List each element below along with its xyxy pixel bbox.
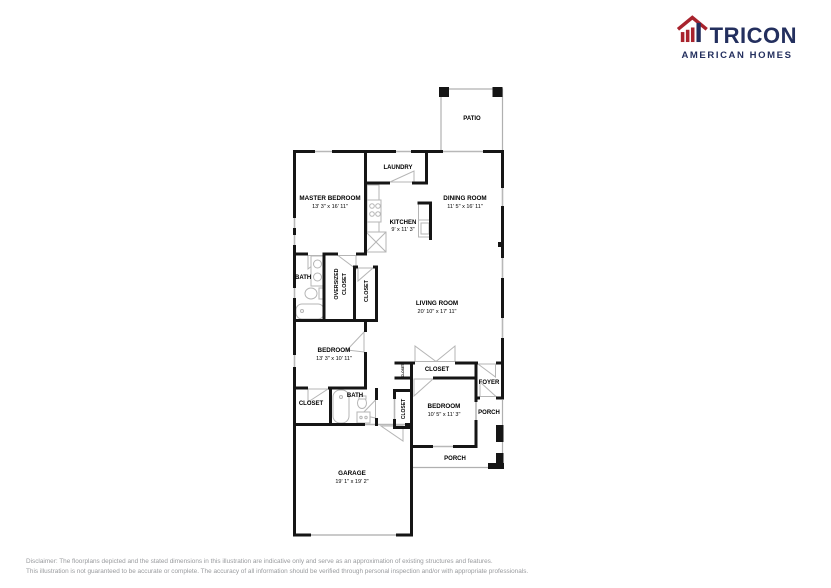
disclaimer: Disclaimer: The floorplans depicted and … [26,557,586,578]
room-label-porch-side: PORCH [478,410,500,416]
room-dims-bedroom-3: 10' 5" x 11' 3" [428,412,461,418]
room-label-bedroom-3: BEDROOM [428,403,461,410]
room-dims-dining-room: 11' 5" x 16' 11" [447,204,483,210]
room-label-dining-room: DINING ROOM [443,195,486,202]
room-dims-master-bedroom: 13' 3" x 16' 11" [312,204,348,210]
room-label-bath-2: BATH [347,393,363,399]
room-label-bedroom-2: BEDROOM [318,347,351,354]
floorplan-page: TRICON AMERICAN HOMES [0,0,831,588]
room-label-foyer: FOYER [479,380,500,386]
room-label-laundry: LAUNDRY [383,165,412,171]
room-label-bedroom-3-closet: CLOSET [425,367,450,373]
room-label-bedroom-2-closet: CLOSET [299,401,324,407]
room-label-patio: PATIO [463,116,481,122]
room-dims-bedroom-2: 13' 3" x 10' 11" [316,356,352,362]
room-label-oversized-closet-line2: CLOSET [342,272,348,295]
room-dims-living-room: 20' 10" x 17' 11" [418,309,457,315]
room-label-master-closet: CLOSET [364,279,370,302]
room-label-living-room: LIVING ROOM [416,300,458,307]
room-label-master-bedroom: MASTER BEDROOM [299,195,360,202]
disclaimer-line-1: Disclaimer: The floorplans depicted and … [26,557,586,567]
disclaimer-line-2: This illustration is not guaranteed to b… [26,567,586,577]
room-label-master-bath: BATH [295,275,311,281]
room-label-entry-closet-small: CLOSET [401,364,405,377]
room-label-oversized-closet-line1: OVERSIZED [334,268,340,299]
room-label-porch-front: PORCH [444,456,466,462]
room-dims-garage: 19' 1" x 19' 2" [335,479,368,485]
floorplan-drawing: PATIO LAUNDRY MASTER BEDROOM 13' 3" x 16… [0,0,831,588]
room-label-hall-closet: CLOSET [401,399,407,419]
room-label-garage: GARAGE [338,470,366,477]
room-label-kitchen: KITCHEN [390,220,417,226]
room-dims-kitchen: 9' x 11' 3" [391,227,414,233]
